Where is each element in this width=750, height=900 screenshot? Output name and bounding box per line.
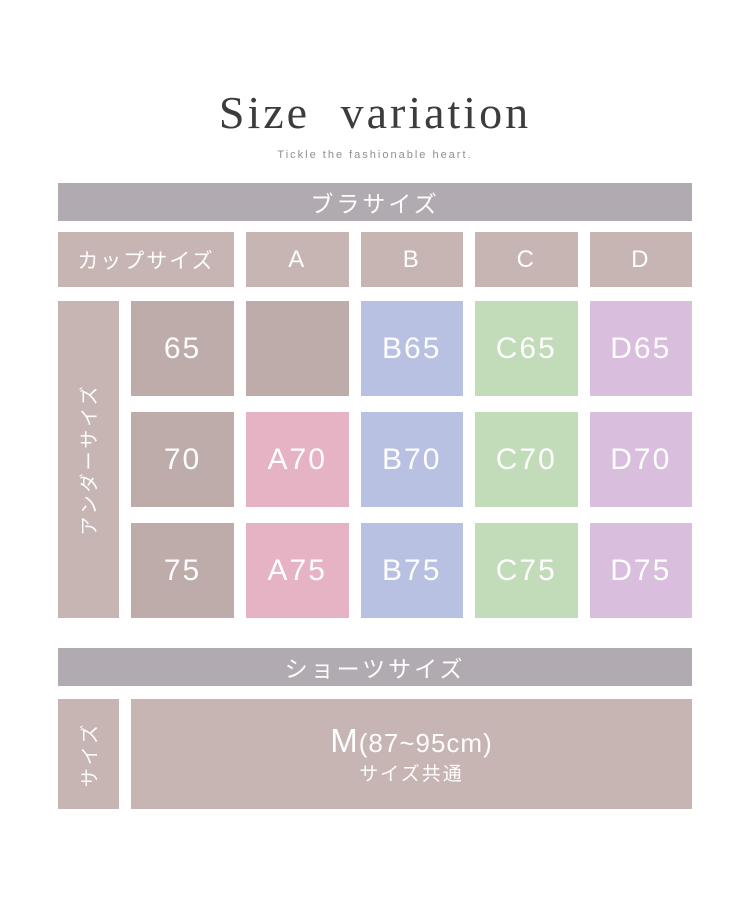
size-cell-B70: B70 xyxy=(361,412,464,507)
cup-size-row: カップサイズ ABCD xyxy=(58,232,692,287)
shorts-size-main: M xyxy=(330,724,359,757)
size-cell-D65: D65 xyxy=(590,301,693,396)
size-cell-C65: C65 xyxy=(475,301,578,396)
page-title: Size variation xyxy=(0,90,750,136)
size-cell-blank xyxy=(246,301,349,396)
size-cell-A75: A75 xyxy=(246,523,349,618)
cup-header-C: C xyxy=(475,232,578,287)
size-variation-page: Size variation Tickle the fashionable he… xyxy=(0,0,750,900)
size-cell-A70: A70 xyxy=(246,412,349,507)
bra-size-header: ブラサイズ xyxy=(58,183,692,221)
size-cell-D75: D75 xyxy=(590,523,693,618)
shorts-side-label: サイズ xyxy=(58,699,119,809)
shorts-side-label-text: サイズ xyxy=(75,721,102,786)
cup-size-label: カップサイズ xyxy=(58,232,234,287)
under-size-65: 65 xyxy=(131,301,234,396)
cup-header-D: D xyxy=(590,232,693,287)
under-size-70: 70 xyxy=(131,412,234,507)
cup-header-B: B xyxy=(361,232,464,287)
page-subtitle: Tickle the fashionable heart. xyxy=(0,150,750,161)
shorts-size-header: ショーツサイズ xyxy=(58,648,692,686)
size-cell-B75: B75 xyxy=(361,523,464,618)
shorts-size-row: サイズ M (87~95cm) サイズ共通 xyxy=(58,699,692,809)
cup-header-A: A xyxy=(246,232,349,287)
size-cell-D70: D70 xyxy=(590,412,693,507)
shorts-size-value-box: M (87~95cm) サイズ共通 xyxy=(131,699,692,809)
under-size-75: 75 xyxy=(131,523,234,618)
shorts-size-range: (87~95cm) xyxy=(359,730,493,756)
bra-size-grid: アンダーサイズ 65B65C65D6570A70B70C70D7075A75B7… xyxy=(58,301,692,618)
size-cell-C75: C75 xyxy=(475,523,578,618)
bra-size-section: ブラサイズ カップサイズ ABCD アンダーサイズ 65B65C65D6570A… xyxy=(58,183,692,618)
shorts-size-note: サイズ共通 xyxy=(359,765,463,784)
size-cell-B65: B65 xyxy=(361,301,464,396)
under-size-label: アンダーサイズ xyxy=(58,301,119,618)
under-size-label-text: アンダーサイズ xyxy=(75,383,102,535)
page-header: Size variation Tickle the fashionable he… xyxy=(0,0,750,161)
shorts-size-value: M (87~95cm) xyxy=(330,724,493,757)
shorts-size-section: ショーツサイズ サイズ M (87~95cm) サイズ共通 xyxy=(58,648,692,809)
size-tables: ブラサイズ カップサイズ ABCD アンダーサイズ 65B65C65D6570A… xyxy=(58,183,692,809)
size-cell-C70: C70 xyxy=(475,412,578,507)
